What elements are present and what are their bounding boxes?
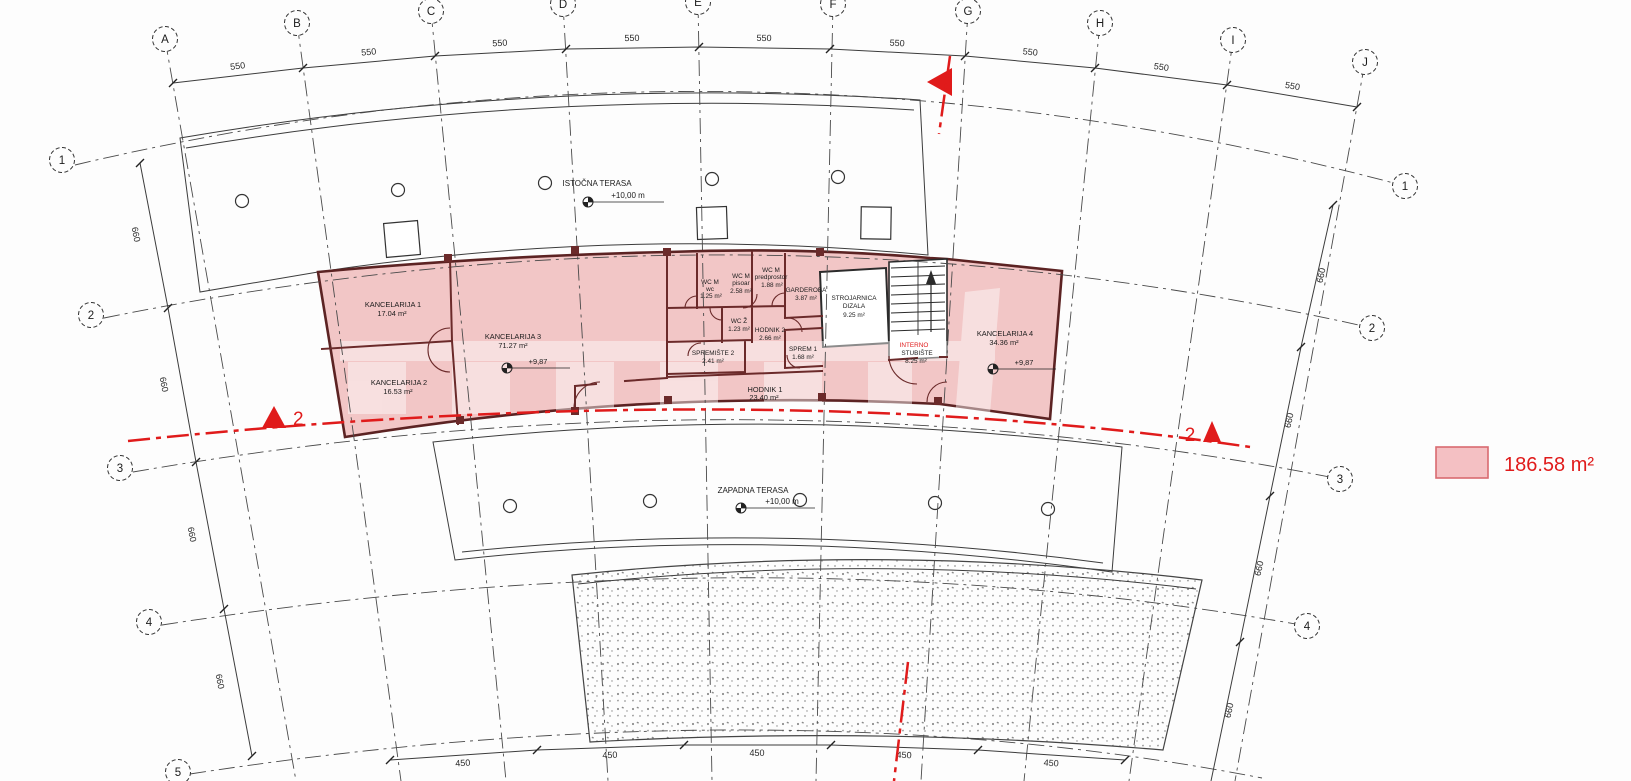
room-name: INTERNO <box>900 342 929 349</box>
room-area: 34.36 m² <box>989 338 1019 347</box>
terrace-skylight-square <box>384 221 421 258</box>
terrace-name: ISTOČNA TERASA <box>562 179 632 188</box>
room-name: KANCELARIJA 4 <box>977 329 1033 338</box>
watermark-block <box>868 362 912 408</box>
dim-label: 450 <box>455 757 471 768</box>
dim-line <box>173 47 1357 107</box>
terrace-column-circle <box>644 495 657 508</box>
grid-number: 1 <box>59 155 65 167</box>
room-area: 3.87 m² <box>795 295 817 302</box>
room-area: 1.23 m² <box>728 326 750 333</box>
section-label: 2 <box>1185 425 1196 446</box>
terrace-level: +10,00 m <box>611 191 645 200</box>
dim-label: 660 <box>214 673 227 690</box>
room-name: WC Ž <box>731 316 747 325</box>
dim-label: 550 <box>1284 80 1300 92</box>
grid-letter: E <box>694 0 702 9</box>
grid-letter: H <box>1096 18 1104 30</box>
grid-number: 4 <box>146 617 153 629</box>
room-area: 17.04 m² <box>377 309 407 318</box>
dim-label: 550 <box>624 33 639 43</box>
terrace-level: +10,00 m <box>765 497 799 506</box>
legend-swatch <box>1436 447 1488 478</box>
terrace-column-circle <box>504 500 517 513</box>
room-name: KANCELARIJA 1 <box>365 300 421 309</box>
dim-label: 550 <box>361 46 377 57</box>
room-name: KANCELARIJA 3 <box>485 332 541 341</box>
room-area: 23.40 m² <box>749 393 779 402</box>
dim-label: 550 <box>756 33 771 43</box>
room-area: 2.41 m² <box>702 358 724 365</box>
dimension-chain-bottom: 450 450 450 450 450 <box>386 741 1129 769</box>
section-triangle-right <box>1203 421 1221 442</box>
grid-letter: B <box>293 18 301 30</box>
floor-plan-canvas: 550 550 550 550 550 550 550 550 550 660 … <box>0 0 1631 781</box>
room-area: 1.68 m² <box>792 354 814 361</box>
terrace-column-circle <box>236 195 249 208</box>
room-subname: pisoar <box>732 280 750 287</box>
dim-label: 550 <box>1022 46 1038 57</box>
room-name: GARDEROBA <box>786 287 828 294</box>
room-area: 8.25 m² <box>905 358 927 365</box>
grid-letter: J <box>1362 57 1368 69</box>
dim-label: 660 <box>186 526 199 543</box>
room-subname: wc <box>705 286 715 293</box>
legend: 186.58 m² <box>1436 447 1594 478</box>
grid-number: 2 <box>1369 323 1375 335</box>
grid-letter: I <box>1231 35 1234 47</box>
grid-number: 3 <box>117 463 123 475</box>
dim-label: 550 <box>230 60 246 72</box>
terrace-name: ZAPADNA TERASA <box>718 486 790 495</box>
section-label: 2 <box>293 409 304 430</box>
dim-label: 550 <box>889 38 905 49</box>
grid-number: 5 <box>175 767 181 779</box>
dim-label: 660 <box>1283 412 1296 429</box>
room-area: 1.25 m² <box>700 293 722 300</box>
floor-plan-drawing: 550 550 550 550 550 550 550 550 550 660 … <box>0 0 1631 781</box>
dim-label: 550 <box>1153 61 1169 73</box>
terrace-column-circle <box>706 173 719 186</box>
room-level: +9,87 <box>1015 358 1034 367</box>
dim-label: 660 <box>1315 267 1328 284</box>
section-triangle-left <box>262 406 286 428</box>
terrace-column-circle <box>1042 503 1055 516</box>
grid-number: 4 <box>1304 621 1311 633</box>
room-area: 9.25 m² <box>843 312 865 319</box>
grid-letter: F <box>829 0 836 11</box>
dim-label: 450 <box>602 750 617 761</box>
room-name: STUBIŠTE <box>901 348 932 357</box>
grid-number: 1 <box>1402 181 1408 193</box>
dim-label: 660 <box>130 226 143 243</box>
dim-label: 450 <box>749 748 764 758</box>
grid-number: 3 <box>1337 474 1343 486</box>
dimension-chain-top: 550 550 550 550 550 550 550 550 550 <box>169 33 1361 111</box>
terrace-column-circle <box>832 171 845 184</box>
room-name: WC M <box>701 279 719 286</box>
room-area: 71.27 m² <box>498 341 528 350</box>
dimension-chain-left: 660 660 660 660 <box>130 159 256 760</box>
dim-label: 550 <box>492 38 508 49</box>
terrace-skylight-square <box>696 206 727 239</box>
grid-letter: D <box>559 0 567 11</box>
room-area: 16.53 m² <box>383 387 413 396</box>
terrace-column-circle <box>929 497 942 510</box>
dim-label: 450 <box>1043 757 1059 768</box>
legend-area-value: 186.58 m² <box>1504 454 1594 476</box>
room-name: SPREM 1 <box>789 346 818 353</box>
grid-bubbles-right: 1 2 3 4 <box>1295 174 1418 639</box>
section-line-top <box>939 56 950 134</box>
room-name: SPREMIŠTE 2 <box>692 348 735 357</box>
grid-number: 2 <box>88 310 94 322</box>
dim-label: 660 <box>158 376 171 393</box>
grid-letter: C <box>427 6 435 18</box>
dimension-chain-right: 660 660 660 660 <box>1211 201 1337 781</box>
room-area: 2.58 m² <box>730 288 752 295</box>
room-name: HODNIK 2 <box>755 327 786 334</box>
grid-bubbles-left: 1 2 3 4 5 <box>50 148 191 781</box>
dim-label: 660 <box>1253 560 1266 577</box>
terrace-skylight-square <box>861 207 892 240</box>
room-name: KANCELARIJA 2 <box>371 378 427 387</box>
room-name: WC M <box>762 267 780 274</box>
dim-ticks <box>169 43 1361 111</box>
room-area: 2.66 m² <box>759 335 781 342</box>
grid-letter: A <box>161 34 169 46</box>
room-name: WC M <box>732 273 750 280</box>
upper-terrace-parapet-line <box>186 103 914 148</box>
grid-letter: G <box>964 6 973 18</box>
room-level: +9,87 <box>529 357 548 366</box>
room-area: 1.88 m² <box>761 282 783 289</box>
room-subname: predprostor <box>755 274 789 281</box>
room-name: DIZALA <box>843 303 866 310</box>
dim-label: 660 <box>1223 702 1236 719</box>
watermark-block <box>452 362 510 414</box>
dim-line <box>1211 205 1333 781</box>
dim-line <box>140 163 252 756</box>
gravel-roof-area <box>572 560 1202 750</box>
terrace-column-circle <box>539 177 552 190</box>
terrace-column-circle <box>392 184 405 197</box>
room-name: STROJARNICA <box>831 295 877 302</box>
